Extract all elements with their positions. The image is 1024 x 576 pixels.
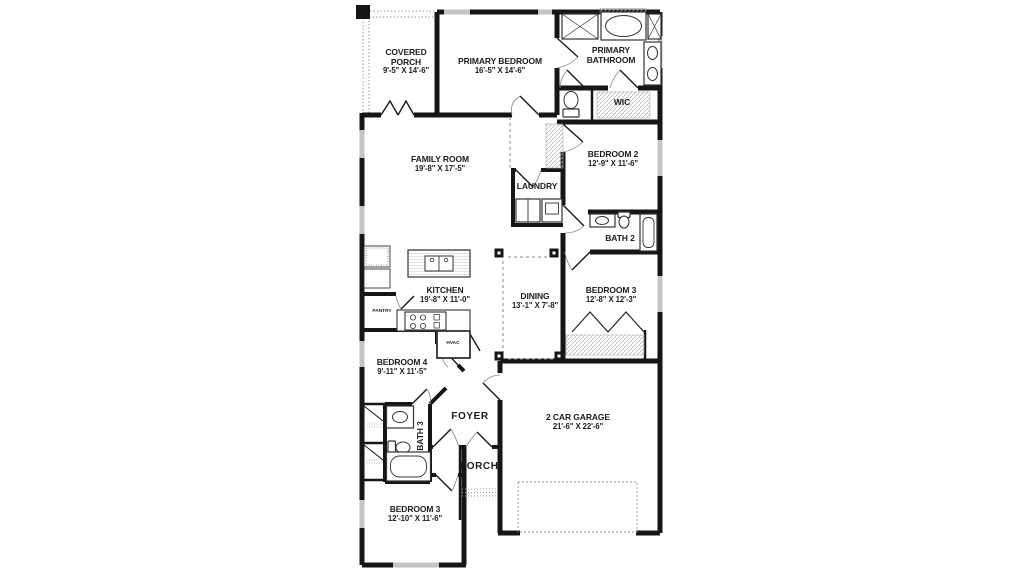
room-label-pantry: PANTRY	[372, 309, 391, 314]
room-label-foyer: FOYER	[451, 411, 488, 422]
room-dims: 19'-8" X 11'-0"	[420, 296, 470, 305]
fixtures	[364, 12, 661, 481]
room-label-bath-3: BATH 3	[416, 421, 426, 450]
room-name: PORCH	[459, 461, 498, 472]
sink-fixture	[393, 412, 408, 423]
room-label-bath-2: BATH 2	[605, 234, 634, 244]
bifold-closet-doors	[572, 312, 644, 332]
toilet-tank	[563, 109, 579, 117]
room-label-hvac: HVAC	[446, 341, 459, 346]
floor-plan-canvas: COVERED PORCH 9'-5" X 14'-6" PRIMARY BED…	[0, 0, 1024, 576]
room-label-porch: PORCH	[459, 461, 498, 472]
room-dims: 19'-8" X 17'-5"	[411, 165, 469, 174]
room-label-bedroom-4: BEDROOM 4 9'-11" X 11'-5"	[377, 358, 428, 376]
room-dims: 13'-1" X 7'-8"	[512, 302, 558, 311]
room-dims: 9'-11" X 11'-5"	[377, 368, 428, 377]
room-name: WIC	[614, 98, 630, 108]
room-name: PANTRY	[372, 309, 391, 314]
room-label-primary-bedroom: PRIMARY BEDROOM 16'-5" X 14'-6"	[458, 57, 542, 75]
room-label-wic: WIC	[614, 98, 630, 108]
room-label-garage: 2 CAR GARAGE 21'-6" X 22'-6"	[546, 413, 610, 431]
room-label-bedroom-3-right: BEDROOM 3 12'-8" X 12'-3"	[586, 286, 637, 304]
room-label-covered-porch: COVERED PORCH 9'-5" X 14'-6"	[372, 48, 440, 76]
room-dims: 12'-9" X 11'-6"	[588, 160, 639, 169]
refrigerator-fixture	[364, 246, 390, 267]
room-name: FOYER	[451, 411, 488, 422]
kitchen-cabinet	[364, 269, 390, 288]
closet-door-lines	[364, 406, 383, 460]
room-name: HVAC	[446, 341, 459, 346]
room-dims: 12'-10" X 11'-6"	[388, 515, 442, 524]
room-label-primary-bathroom: PRIMARY BATHROOM	[577, 46, 645, 65]
room-dims: 16'-5" X 14'-6"	[458, 67, 542, 76]
garage-door-apron	[518, 482, 637, 532]
room-dims: 21'-6" X 22'-6"	[546, 423, 610, 432]
room-name: BATH 2	[605, 234, 634, 244]
primary-tub-basin	[606, 16, 642, 37]
sink-fixture	[648, 47, 658, 60]
porch-step-hatch	[462, 489, 498, 496]
bath2-tub-basin	[643, 218, 654, 248]
room-label-dining: DINING 13'-1" X 7'-8"	[512, 292, 558, 310]
porch-post	[356, 5, 370, 19]
toilet-fixture	[564, 92, 578, 109]
room-label-family-room: FAMILY ROOM 19'-8" X 17'-5"	[411, 155, 469, 173]
room-label-laundry: LAUNDRY	[517, 182, 558, 192]
room-label-bedroom-2: BEDROOM 2 12'-9" X 11'-6"	[588, 150, 639, 168]
room-label-bedroom-3-bottom: BEDROOM 3 12'-10" X 11'-6"	[388, 505, 442, 523]
room-name: BATH 3	[416, 421, 426, 450]
room-dims: 12'-8" X 12'-3"	[586, 296, 637, 305]
room-label-kitchen: KITCHEN 19'-8" X 11'-0"	[420, 286, 470, 304]
dryer-door	[546, 203, 559, 214]
room-name: PRIMARY BATHROOM	[577, 46, 645, 65]
room-dims: 9'-5" X 14'-6"	[372, 67, 440, 76]
bath3-tub-basin	[391, 456, 427, 477]
room-name: COVERED PORCH	[372, 48, 440, 67]
floor-plan-drawing	[0, 0, 1024, 576]
sink-fixture	[596, 217, 609, 225]
toilet-fixture	[396, 442, 410, 453]
room-name: LAUNDRY	[517, 182, 558, 192]
sink-fixture	[648, 68, 658, 81]
toilet-fixture	[619, 216, 629, 228]
